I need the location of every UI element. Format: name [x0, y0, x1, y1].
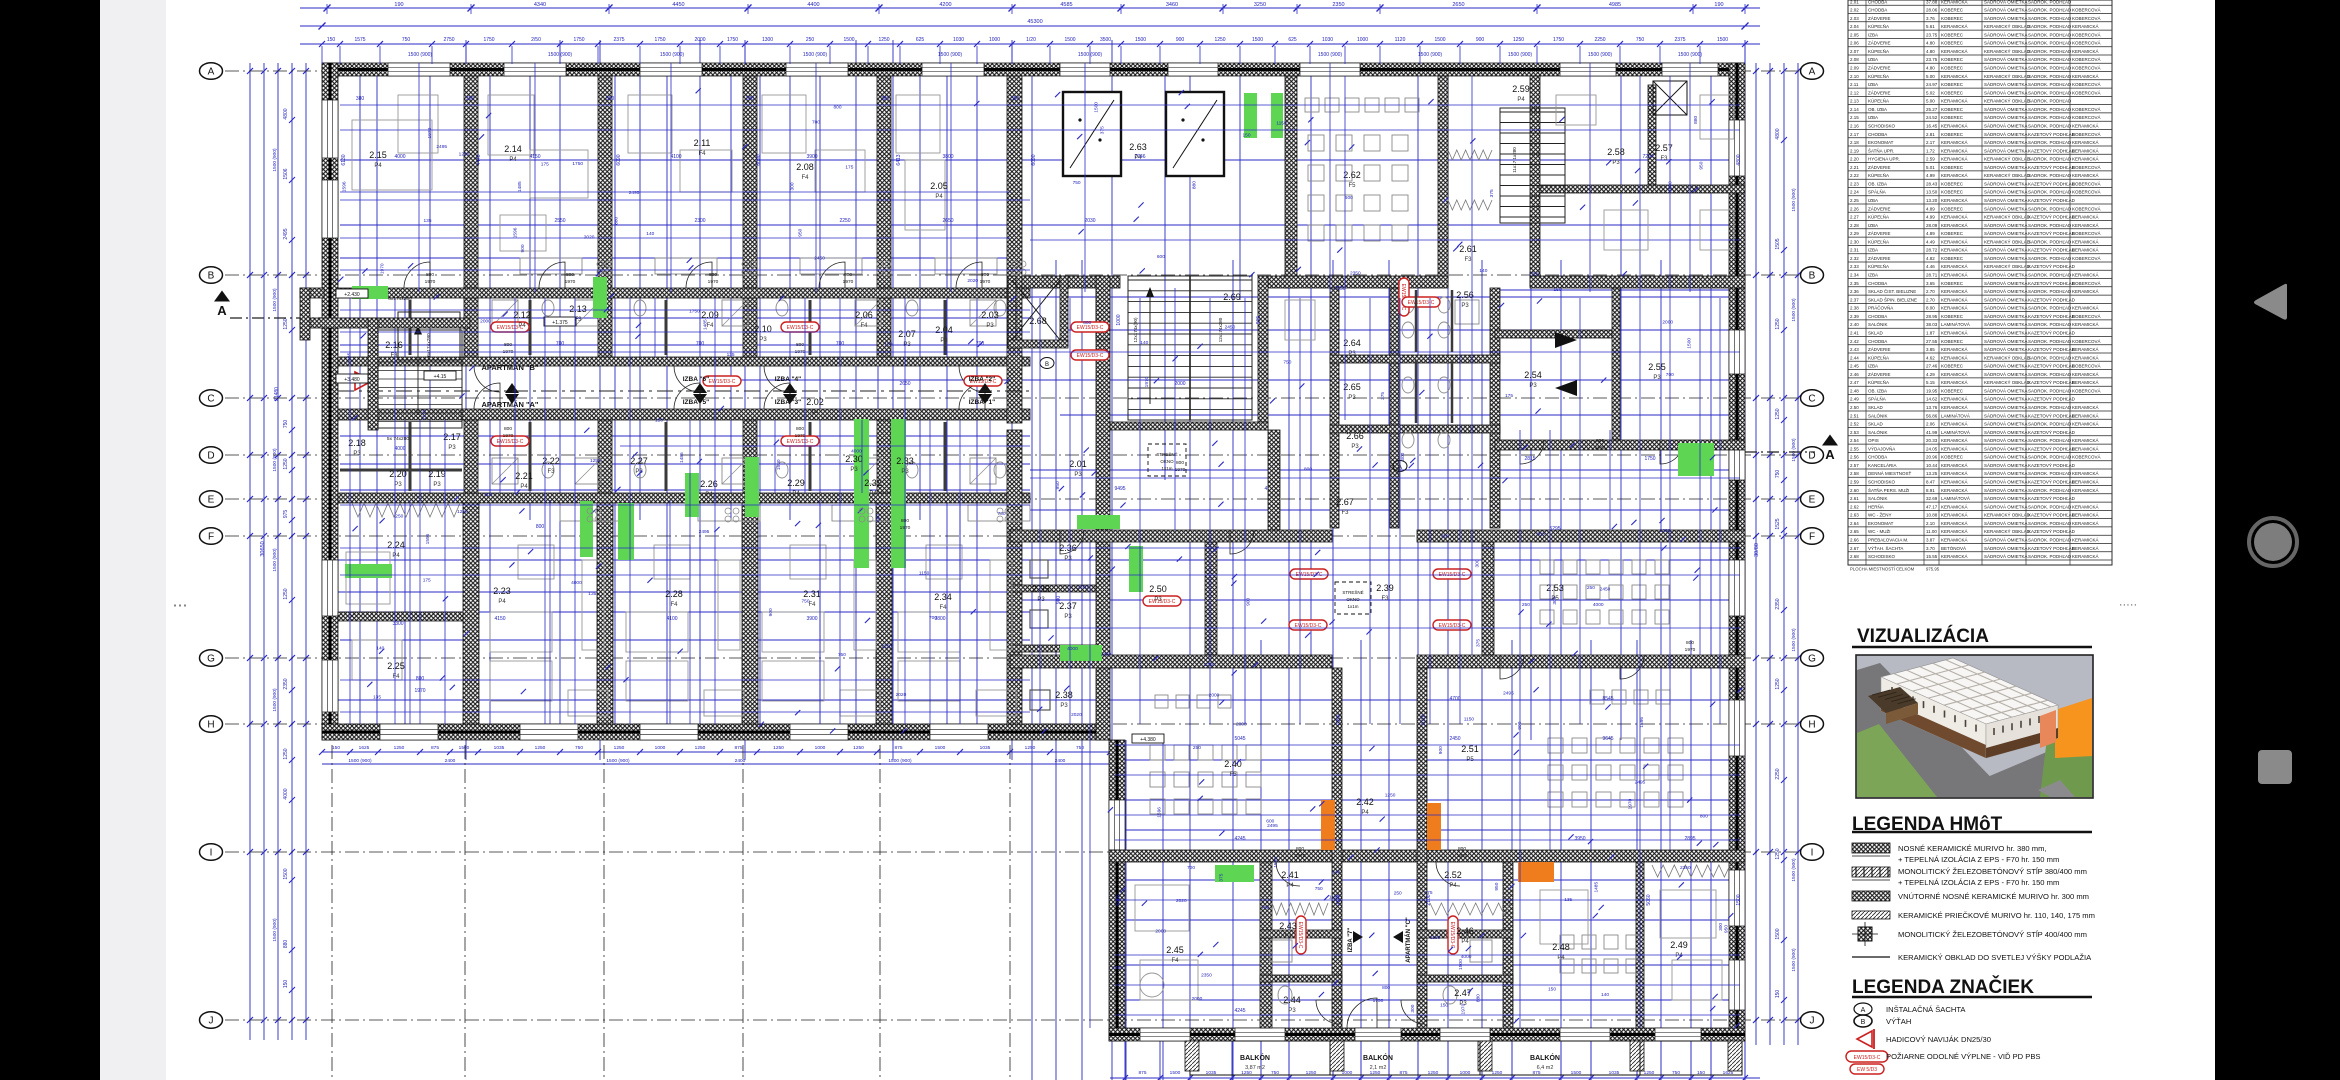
- svg-text:SCHODISKO: SCHODISKO: [1868, 554, 1896, 559]
- svg-text:KAZETOVÝ PODHĽAD: KAZETOVÝ PODHĽAD: [2028, 131, 2076, 137]
- svg-text:KOBERCOVÁ: KOBERCOVÁ: [2072, 387, 2101, 393]
- svg-text:SADROK. PODHĽAD: SADROK. PODHĽAD: [2028, 273, 2072, 278]
- svg-text:1250: 1250: [590, 458, 601, 464]
- svg-text:1970: 1970: [708, 279, 719, 285]
- svg-text:950: 950: [1724, 925, 1730, 933]
- svg-text:300: 300: [1552, 596, 1558, 604]
- svg-text:PLOCHA MIESTNOSTÍ CELKOM: PLOCHA MIESTNOSTÍ CELKOM: [1850, 567, 1915, 572]
- svg-text:2.19: 2.19: [1850, 148, 1859, 153]
- svg-text:2.47: 2.47: [1454, 988, 1472, 998]
- svg-text:4.29: 4.29: [1926, 372, 1935, 377]
- svg-text:SADROK. PODHĽAD: SADROK. PODHĽAD: [2028, 115, 2072, 120]
- svg-text:37.88: 37.88: [1926, 0, 1938, 4]
- svg-text:SÁDROVÁ OMIETKA: SÁDROVÁ OMIETKA: [1984, 545, 2028, 551]
- svg-text:KERAMICKÁ: KERAMICKÁ: [2072, 48, 2099, 54]
- svg-text:2.27: 2.27: [1850, 215, 1859, 220]
- svg-text:SÁDROVÁ OMIETKA: SÁDROVÁ OMIETKA: [1984, 503, 2028, 509]
- svg-text:I: I: [1811, 847, 1814, 858]
- svg-text:IZBA: IZBA: [1868, 198, 1878, 203]
- svg-text:800: 800: [1176, 460, 1184, 466]
- svg-text:P3: P3: [1351, 444, 1359, 450]
- svg-text:SÁDROVÁ OMIETKA: SÁDROVÁ OMIETKA: [1984, 0, 2028, 4]
- svg-text:P4: P4: [518, 323, 526, 329]
- svg-text:KERAMICKÁ: KERAMICKÁ: [2072, 512, 2099, 518]
- svg-text:KERAMICKÁ: KERAMICKÁ: [2072, 172, 2099, 178]
- svg-text:140: 140: [1479, 268, 1487, 274]
- svg-text:KÚPEĽŇA: KÚPEĽŇA: [1868, 379, 1889, 385]
- svg-text:F: F: [208, 531, 214, 542]
- svg-text:SÁDROVÁ OMIETKA: SÁDROVÁ OMIETKA: [1984, 272, 2028, 278]
- svg-text:6x174x280: 6x174x280: [388, 296, 412, 302]
- svg-text:800: 800: [796, 426, 804, 432]
- svg-text:7950: 7950: [1336, 714, 1342, 725]
- svg-text:KERAMICKÁ: KERAMICKÁ: [1941, 247, 1968, 253]
- svg-text:4100: 4100: [666, 616, 677, 622]
- svg-text:KOBERCOVÁ: KOBERCOVÁ: [2072, 189, 2101, 195]
- svg-text:2495: 2495: [629, 190, 640, 196]
- svg-text:SADROK. PODHĽAD: SADROK. PODHĽAD: [2028, 488, 2072, 493]
- svg-text:3.85: 3.85: [1926, 347, 1935, 352]
- svg-text:1120: 1120: [1395, 37, 1406, 43]
- svg-text:375: 375: [1489, 189, 1495, 197]
- svg-text:1500 (900): 1500 (900): [606, 758, 630, 764]
- svg-text:1250: 1250: [1775, 848, 1781, 859]
- svg-text:1150: 1150: [919, 571, 930, 577]
- svg-text:1500 (900): 1500 (900): [272, 688, 278, 712]
- svg-text:2.52: 2.52: [1444, 870, 1462, 880]
- svg-text:135: 135: [727, 352, 735, 358]
- svg-text:OB. IZBA: OB. IZBA: [1868, 388, 1887, 393]
- svg-text:250: 250: [1587, 585, 1595, 591]
- svg-text:135: 135: [423, 218, 431, 224]
- svg-text:ZÁDVERIE: ZÁDVERIE: [1868, 15, 1891, 21]
- svg-text:38.03: 38.03: [1926, 322, 1938, 327]
- svg-text:800: 800: [1686, 640, 1694, 646]
- svg-text:SADROK. PODHĽAD: SADROK. PODHĽAD: [2028, 49, 2072, 54]
- svg-text:SÁDROVÁ OMIETKA: SÁDROVÁ OMIETKA: [1984, 412, 2028, 418]
- svg-text:800: 800: [796, 342, 804, 348]
- svg-text:IZBA: IZBA: [1868, 57, 1878, 62]
- svg-text:1250: 1250: [459, 151, 470, 157]
- svg-text:A: A: [217, 303, 227, 318]
- svg-text:KAZETOVÝ PODHĽAD: KAZETOVÝ PODHĽAD: [2028, 445, 2076, 451]
- svg-text:2.21: 2.21: [515, 471, 533, 481]
- svg-text:KOBEREC: KOBEREC: [1941, 256, 1964, 261]
- svg-text:SÁDROVÁ OMIETKA: SÁDROVÁ OMIETKA: [1984, 421, 2028, 427]
- svg-text:2.66: 2.66: [1346, 431, 1364, 441]
- svg-text:2020: 2020: [584, 235, 595, 241]
- svg-text:F4: F4: [801, 175, 809, 181]
- svg-text:SÁDROVÁ OMIETKA: SÁDROVÁ OMIETKA: [1984, 404, 2028, 410]
- svg-text:28.95: 28.95: [1926, 314, 1938, 319]
- svg-text:LEGENDA ZNAČIEK: LEGENDA ZNAČIEK: [1852, 976, 2034, 998]
- svg-text:2000: 2000: [1192, 996, 1203, 1002]
- svg-text:WC - ŽENY: WC - ŽENY: [1868, 511, 1892, 518]
- svg-text:SADROK. PODHĽAD: SADROK. PODHĽAD: [2028, 554, 2072, 559]
- svg-text:SADROK. PODHĽAD: SADROK. PODHĽAD: [2028, 223, 2072, 228]
- svg-text:300: 300: [790, 182, 796, 190]
- svg-text:KÚPEĽŇA: KÚPEĽŇA: [1868, 73, 1889, 79]
- svg-text:SADROK. PODHĽAD: SADROK. PODHĽAD: [2028, 239, 2072, 244]
- svg-text:1500: 1500: [843, 37, 854, 43]
- svg-text:ZÁDVERIE: ZÁDVERIE: [1868, 371, 1891, 377]
- svg-text:24.05: 24.05: [1926, 446, 1938, 451]
- svg-text:OKNO: OKNO: [1346, 597, 1360, 602]
- svg-text:1250: 1250: [1775, 678, 1781, 689]
- svg-text:KERAMICKÁ: KERAMICKÁ: [1941, 346, 1968, 352]
- svg-text:HYGIENA UPR.: HYGIENA UPR.: [1868, 157, 1900, 162]
- svg-text:2.03: 2.03: [1850, 16, 1859, 21]
- svg-text:KERAMICKÁ: KERAMICKÁ: [1941, 553, 1968, 559]
- svg-text:2350: 2350: [1332, 2, 1344, 8]
- svg-text:P4: P4: [392, 553, 400, 559]
- svg-text:SÁDROVÁ OMIETKA: SÁDROVÁ OMIETKA: [1984, 280, 2028, 286]
- svg-text:380: 380: [606, 96, 615, 102]
- svg-text:C: C: [207, 393, 214, 404]
- svg-text:F3: F3: [390, 353, 398, 359]
- svg-text:2.11: 2.11: [1850, 82, 1859, 87]
- svg-text:2495: 2495: [699, 529, 710, 535]
- svg-text:1500: 1500: [1668, 181, 1674, 192]
- svg-text:1750: 1750: [1529, 271, 1540, 277]
- svg-text:KOBERCOVÁ: KOBERCOVÁ: [2072, 280, 2101, 286]
- svg-text:KERAMICKÁ: KERAMICKÁ: [2072, 247, 2099, 253]
- svg-text:380: 380: [881, 96, 890, 102]
- svg-text:1500: 1500: [1064, 37, 1075, 43]
- svg-text:2.41: 2.41: [1281, 870, 1299, 880]
- svg-text:KOBERCOVÁ: KOBERCOVÁ: [2072, 255, 2101, 261]
- svg-text:⋯: ⋯: [173, 597, 188, 614]
- svg-text:900: 900: [1056, 596, 1062, 605]
- svg-text:750: 750: [402, 37, 411, 43]
- svg-text:1150: 1150: [1430, 935, 1441, 941]
- svg-text:IZBA: IZBA: [1868, 248, 1878, 253]
- svg-text:6,4 m2: 6,4 m2: [1537, 1065, 1554, 1071]
- svg-text:2.01: 2.01: [1850, 0, 1859, 4]
- svg-text:13.25: 13.25: [1926, 471, 1938, 476]
- svg-text:IZBA: IZBA: [1868, 273, 1878, 278]
- svg-text:3.76: 3.76: [1926, 16, 1935, 21]
- svg-text:2.49: 2.49: [1670, 940, 1688, 950]
- svg-text:KAZETOVÝ PODHĽAD: KAZETOVÝ PODHĽAD: [2028, 412, 2076, 418]
- svg-text:1250: 1250: [283, 458, 289, 469]
- svg-text:1970: 1970: [427, 127, 433, 138]
- svg-text:KERAMICKÁ: KERAMICKÁ: [2072, 321, 2099, 327]
- svg-text:KERAMICKÁ: KERAMICKÁ: [1941, 379, 1968, 385]
- svg-text:BALKÓN: BALKÓN: [1530, 1053, 1560, 1062]
- svg-text:SALÓNIK: SALÓNIK: [1868, 321, 1888, 327]
- svg-text:SÁDROVÁ OMIETKA: SÁDROVÁ OMIETKA: [1984, 222, 2028, 228]
- svg-text:2.60: 2.60: [1850, 488, 1859, 493]
- svg-text:2.43: 2.43: [1279, 921, 1297, 931]
- svg-text:2.58: 2.58: [1850, 471, 1859, 476]
- svg-text:KAZETOVÝ PODHĽAD: KAZETOVÝ PODHĽAD: [2028, 363, 2076, 369]
- svg-text:1250: 1250: [1775, 408, 1781, 419]
- svg-text:SÁDROVÁ OMIETKA: SÁDROVÁ OMIETKA: [1984, 81, 2028, 87]
- svg-text:2020: 2020: [1176, 898, 1187, 904]
- svg-text:KÚPEĽŇA: KÚPEĽŇA: [1868, 172, 1889, 178]
- svg-text:1150: 1150: [1276, 121, 1287, 127]
- svg-text:ZÁDVERIE: ZÁDVERIE: [1868, 205, 1891, 211]
- svg-text:SÁDROVÁ OMIETKA: SÁDROVÁ OMIETKA: [1984, 487, 2028, 493]
- svg-text:880: 880: [1476, 994, 1482, 1002]
- svg-text:2.50: 2.50: [1850, 405, 1859, 410]
- svg-text:KERAMICKÁ: KERAMICKÁ: [1941, 238, 1968, 244]
- svg-text:4440: 4440: [476, 154, 482, 165]
- svg-text:4.99: 4.99: [1926, 173, 1935, 178]
- svg-text:2.54: 2.54: [1524, 370, 1542, 380]
- svg-text:2.05: 2.05: [930, 181, 948, 191]
- svg-text:KAZETOVÝ PODHĽAD: KAZETOVÝ PODHĽAD: [2028, 230, 2076, 236]
- svg-text:1x1m: 1x1m: [1161, 466, 1172, 471]
- svg-text:1750: 1750: [654, 37, 665, 43]
- svg-text:190: 190: [1714, 2, 1723, 8]
- svg-text:CHODBA: CHODBA: [1868, 8, 1887, 13]
- svg-text:1750: 1750: [573, 37, 584, 43]
- svg-text:HERŇA: HERŇA: [1868, 503, 1884, 509]
- svg-text:1970: 1970: [1595, 445, 1606, 451]
- svg-text:SÁDROVÁ OMIETKA: SÁDROVÁ OMIETKA: [1984, 429, 2028, 435]
- svg-text:2.20: 2.20: [389, 469, 407, 479]
- svg-text:2.33: 2.33: [1850, 264, 1859, 269]
- svg-text:2250: 2250: [1775, 768, 1781, 779]
- svg-text:KOBEREC: KOBEREC: [1941, 314, 1964, 319]
- svg-text:150: 150: [283, 980, 289, 989]
- svg-text:SÁDROVÁ OMIETKA: SÁDROVÁ OMIETKA: [1984, 65, 2028, 71]
- svg-text:SÁDROVÁ OMIETKA: SÁDROVÁ OMIETKA: [1984, 147, 2028, 153]
- svg-text:EW15/D3-C: EW15/D3-C: [1449, 922, 1455, 949]
- svg-text:KERAMICKÁ: KERAMICKÁ: [1941, 156, 1968, 162]
- svg-text:2.54: 2.54: [1850, 438, 1859, 443]
- svg-text:KERAMICKÁ: KERAMICKÁ: [2072, 123, 2099, 129]
- svg-text:F3: F3: [1381, 596, 1389, 602]
- svg-text:2000: 2000: [1174, 381, 1185, 387]
- svg-text:2.68: 2.68: [1850, 554, 1859, 559]
- svg-text:1030: 1030: [953, 37, 964, 43]
- svg-text:1.87: 1.87: [1926, 331, 1935, 336]
- svg-text:2.47: 2.47: [1850, 380, 1859, 385]
- svg-text:P4: P4: [1449, 883, 1457, 889]
- svg-text:2.32: 2.32: [1850, 256, 1859, 261]
- svg-text:28.09: 28.09: [1926, 223, 1938, 228]
- svg-text:1250: 1250: [283, 748, 289, 759]
- svg-text:KERAMICKÝ OBKLAD: KERAMICKÝ OBKLAD: [1984, 172, 2031, 178]
- svg-text:1970: 1970: [1461, 1003, 1467, 1014]
- svg-text:2.44: 2.44: [1283, 995, 1301, 1005]
- svg-text:1970: 1970: [1457, 853, 1468, 859]
- svg-text:600: 600: [1441, 533, 1449, 539]
- svg-text:SÁDROVÁ OMIETKA: SÁDROVÁ OMIETKA: [1984, 330, 2028, 336]
- svg-text:P3: P3: [850, 467, 858, 473]
- svg-text:KOBERCOVÁ: KOBERCOVÁ: [2072, 106, 2101, 112]
- svg-text:SADROK. PODHĽAD: SADROK. PODHĽAD: [2028, 438, 2072, 443]
- svg-text:3.70: 3.70: [1926, 546, 1935, 551]
- svg-text:6090: 6090: [1031, 154, 1037, 165]
- svg-text:KAZETOVÝ PODHĽAD: KAZETOVÝ PODHĽAD: [2028, 263, 2076, 269]
- svg-text:1750: 1750: [572, 161, 583, 167]
- svg-text:2.70: 2.70: [1926, 297, 1935, 302]
- svg-text:1500: 1500: [1093, 102, 1099, 113]
- svg-text:ZÁDVERIE: ZÁDVERIE: [1868, 346, 1891, 352]
- svg-text:2.48: 2.48: [1850, 388, 1859, 393]
- svg-text:1000: 1000: [989, 37, 1000, 43]
- svg-text:2020: 2020: [967, 278, 978, 284]
- svg-text:P3: P3: [940, 338, 948, 344]
- svg-text:2.57: 2.57: [1850, 463, 1859, 468]
- svg-text:KERAMICKÁ: KERAMICKÁ: [2072, 412, 2099, 418]
- svg-text:16.45: 16.45: [1926, 124, 1938, 129]
- svg-text:·····: ·····: [2119, 599, 2137, 611]
- svg-text:2.56: 2.56: [1456, 290, 1474, 300]
- svg-text:P4: P4: [811, 410, 819, 416]
- svg-text:SKLAD ŠPIN. BIELIZNE: SKLAD ŠPIN. BIELIZNE: [1868, 296, 1917, 302]
- svg-text:2.31: 2.31: [1850, 248, 1859, 253]
- svg-text:P3: P3: [394, 482, 402, 488]
- svg-text:3900: 3900: [806, 616, 817, 622]
- svg-text:KOBEREC: KOBEREC: [1941, 90, 1964, 95]
- svg-text:1970: 1970: [565, 279, 576, 285]
- svg-text:2.10: 2.10: [1850, 74, 1859, 79]
- svg-text:F3: F3: [1341, 510, 1349, 516]
- svg-text:KOBERCOVÁ: KOBERCOVÁ: [2072, 338, 2101, 344]
- svg-text:20.96: 20.96: [1926, 455, 1938, 460]
- svg-text:250: 250: [1193, 745, 1201, 751]
- svg-text:CHODBA: CHODBA: [1868, 281, 1887, 286]
- svg-text:KOBERCOVÁ: KOBERCOVÁ: [2072, 180, 2101, 186]
- svg-text:2.24: 2.24: [1850, 190, 1859, 195]
- svg-text:5045: 5045: [1234, 736, 1245, 742]
- svg-text:2300: 2300: [694, 218, 705, 224]
- svg-text:2/50: 2/50: [531, 37, 541, 43]
- svg-text:2.30: 2.30: [1850, 239, 1859, 244]
- svg-text:KAZETOVÝ PODHĽAD: KAZETOVÝ PODHĽAD: [2028, 495, 2076, 501]
- svg-text:OKNO: OKNO: [1160, 459, 1174, 464]
- svg-text:F4: F4: [939, 605, 947, 611]
- svg-text:A: A: [1861, 1007, 1866, 1014]
- svg-text:2495: 2495: [436, 144, 447, 150]
- svg-text:28.06: 28.06: [1926, 8, 1938, 13]
- svg-text:2.38: 2.38: [1850, 306, 1859, 311]
- svg-text:1750: 1750: [1373, 998, 1384, 1004]
- svg-text:2.13: 2.13: [1850, 99, 1859, 104]
- svg-text:IZBA "4": IZBA "4": [775, 376, 802, 383]
- svg-text:175: 175: [1424, 890, 1432, 896]
- svg-text:IZBA "5": IZBA "5": [683, 399, 710, 406]
- svg-text:380: 380: [466, 96, 475, 102]
- svg-text:1500 (900): 1500 (900): [888, 758, 912, 764]
- svg-text:SÁDROVÁ OMIETKA: SÁDROVÁ OMIETKA: [1984, 139, 2028, 145]
- svg-text:2.51: 2.51: [1461, 744, 1479, 754]
- svg-text:+4.380: +4.380: [1140, 737, 1156, 743]
- svg-text:BETÓNOVÁ: BETÓNOVÁ: [1941, 545, 1966, 551]
- svg-text:2550: 2550: [554, 218, 565, 224]
- svg-text:1030: 1030: [1322, 37, 1333, 43]
- svg-text:2.65: 2.65: [1343, 382, 1361, 392]
- svg-text:750: 750: [1073, 180, 1081, 186]
- svg-text:1x1m: 1x1m: [1347, 604, 1358, 609]
- svg-text:28.71: 28.71: [1926, 273, 1938, 278]
- svg-text:2.39: 2.39: [1376, 583, 1394, 593]
- svg-text:4000: 4000: [394, 154, 405, 160]
- svg-text:B: B: [1861, 1019, 1866, 1026]
- svg-text:2.65: 2.65: [1850, 529, 1859, 534]
- svg-text:1250: 1250: [457, 509, 468, 515]
- svg-text:IZBA: IZBA: [1868, 115, 1878, 120]
- svg-text:2.06: 2.06: [1926, 422, 1935, 427]
- svg-text:4150: 4150: [494, 616, 505, 622]
- svg-text:2.35: 2.35: [1032, 584, 1050, 594]
- svg-text:4800: 4800: [283, 108, 289, 119]
- svg-text:800: 800: [844, 272, 852, 278]
- svg-text:KÚPEĽŇA: KÚPEĽŇA: [1868, 238, 1889, 244]
- svg-text:2.40: 2.40: [1850, 322, 1859, 327]
- svg-text:800: 800: [709, 272, 717, 278]
- svg-text:P4: P4: [792, 491, 800, 497]
- svg-text:SÁDROVÁ OMIETKA: SÁDROVÁ OMIETKA: [1984, 131, 2028, 137]
- svg-text:880: 880: [613, 216, 619, 224]
- svg-text:1485: 1485: [517, 181, 523, 192]
- svg-text:700: 700: [812, 120, 820, 126]
- svg-text:SÁDROVÁ OMIETKA: SÁDROVÁ OMIETKA: [1984, 197, 2028, 203]
- svg-text:SKLAD: SKLAD: [1868, 331, 1884, 336]
- svg-text:POŽIARNE ODOLNÉ VÝPLNE - VIĎ P: POŽIARNE ODOLNÉ VÝPLNE - VIĎ PD PBS: [1886, 1052, 2040, 1061]
- svg-text:900: 900: [1245, 597, 1251, 605]
- svg-text:P3: P3: [448, 445, 456, 451]
- svg-text:32.69: 32.69: [1926, 496, 1938, 501]
- svg-text:2375: 2375: [1674, 37, 1685, 43]
- svg-text:SADROK. PODHĽAD: SADROK. PODHĽAD: [2028, 99, 2072, 104]
- svg-text:1500: 1500: [1135, 37, 1146, 43]
- svg-text:1500 (900): 1500 (900): [1791, 298, 1797, 322]
- svg-text:SÁDROVÁ OMIETKA: SÁDROVÁ OMIETKA: [1984, 495, 2028, 501]
- svg-text:300: 300: [1400, 452, 1406, 460]
- svg-text:INŠTALAČNÁ ŠACHTA: INŠTALAČNÁ ŠACHTA: [1886, 1005, 1966, 1014]
- svg-text:SÁDROVÁ OMIETKA: SÁDROVÁ OMIETKA: [1984, 338, 2028, 344]
- svg-text:1750: 1750: [1553, 37, 1564, 43]
- svg-text:STREŠNÉ: STREŠNÉ: [1156, 451, 1177, 457]
- svg-text:KOBERCOVÁ: KOBERCOVÁ: [2072, 40, 2101, 46]
- svg-text:1500 (900): 1500 (900): [272, 548, 278, 572]
- svg-text:2.07: 2.07: [1850, 49, 1859, 54]
- svg-text:800: 800: [1296, 846, 1304, 852]
- svg-text:ZÁDVERIE: ZÁDVERIE: [1868, 65, 1891, 71]
- svg-text:4800: 4800: [1775, 128, 1781, 139]
- svg-text:6413: 6413: [896, 154, 902, 165]
- svg-text:KERAMICKÁ: KERAMICKÁ: [2072, 305, 2099, 311]
- svg-text:KERAMICKÁ: KERAMICKÁ: [1941, 520, 1968, 526]
- svg-text:KERAMICKÝ OBKLAD: KERAMICKÝ OBKLAD: [1984, 98, 2031, 104]
- svg-text:KÚPEĽŇA: KÚPEĽŇA: [1868, 23, 1889, 29]
- svg-text:IZBA: IZBA: [1868, 364, 1878, 369]
- svg-text:2.10: 2.10: [754, 324, 772, 334]
- svg-text:150: 150: [1553, 287, 1561, 293]
- svg-text:KERAMICKÁ: KERAMICKÁ: [2072, 437, 2099, 443]
- svg-text:2.49: 2.49: [1850, 397, 1859, 402]
- svg-text:2375: 2375: [613, 37, 624, 43]
- svg-text:2350: 2350: [1350, 270, 1361, 276]
- svg-text:STREŠNÉ: STREŠNÉ: [1342, 589, 1363, 595]
- svg-text:600: 600: [1266, 819, 1274, 825]
- svg-text:KAZETOVÝ PODHĽAD: KAZETOVÝ PODHĽAD: [2028, 396, 2076, 402]
- svg-text:23.75: 23.75: [1926, 57, 1938, 62]
- svg-text:KOBEREC: KOBEREC: [1941, 181, 1964, 186]
- svg-text:SÁDROVÁ OMIETKA: SÁDROVÁ OMIETKA: [1984, 255, 2028, 261]
- svg-text:4450: 4450: [672, 2, 684, 8]
- svg-text:375: 375: [1219, 873, 1225, 881]
- svg-text:380: 380: [356, 96, 365, 102]
- svg-text:ZÁDVERIE: ZÁDVERIE: [1868, 230, 1891, 236]
- svg-text:SADROK. PODHĽAD: SADROK. PODHĽAD: [2028, 339, 2072, 344]
